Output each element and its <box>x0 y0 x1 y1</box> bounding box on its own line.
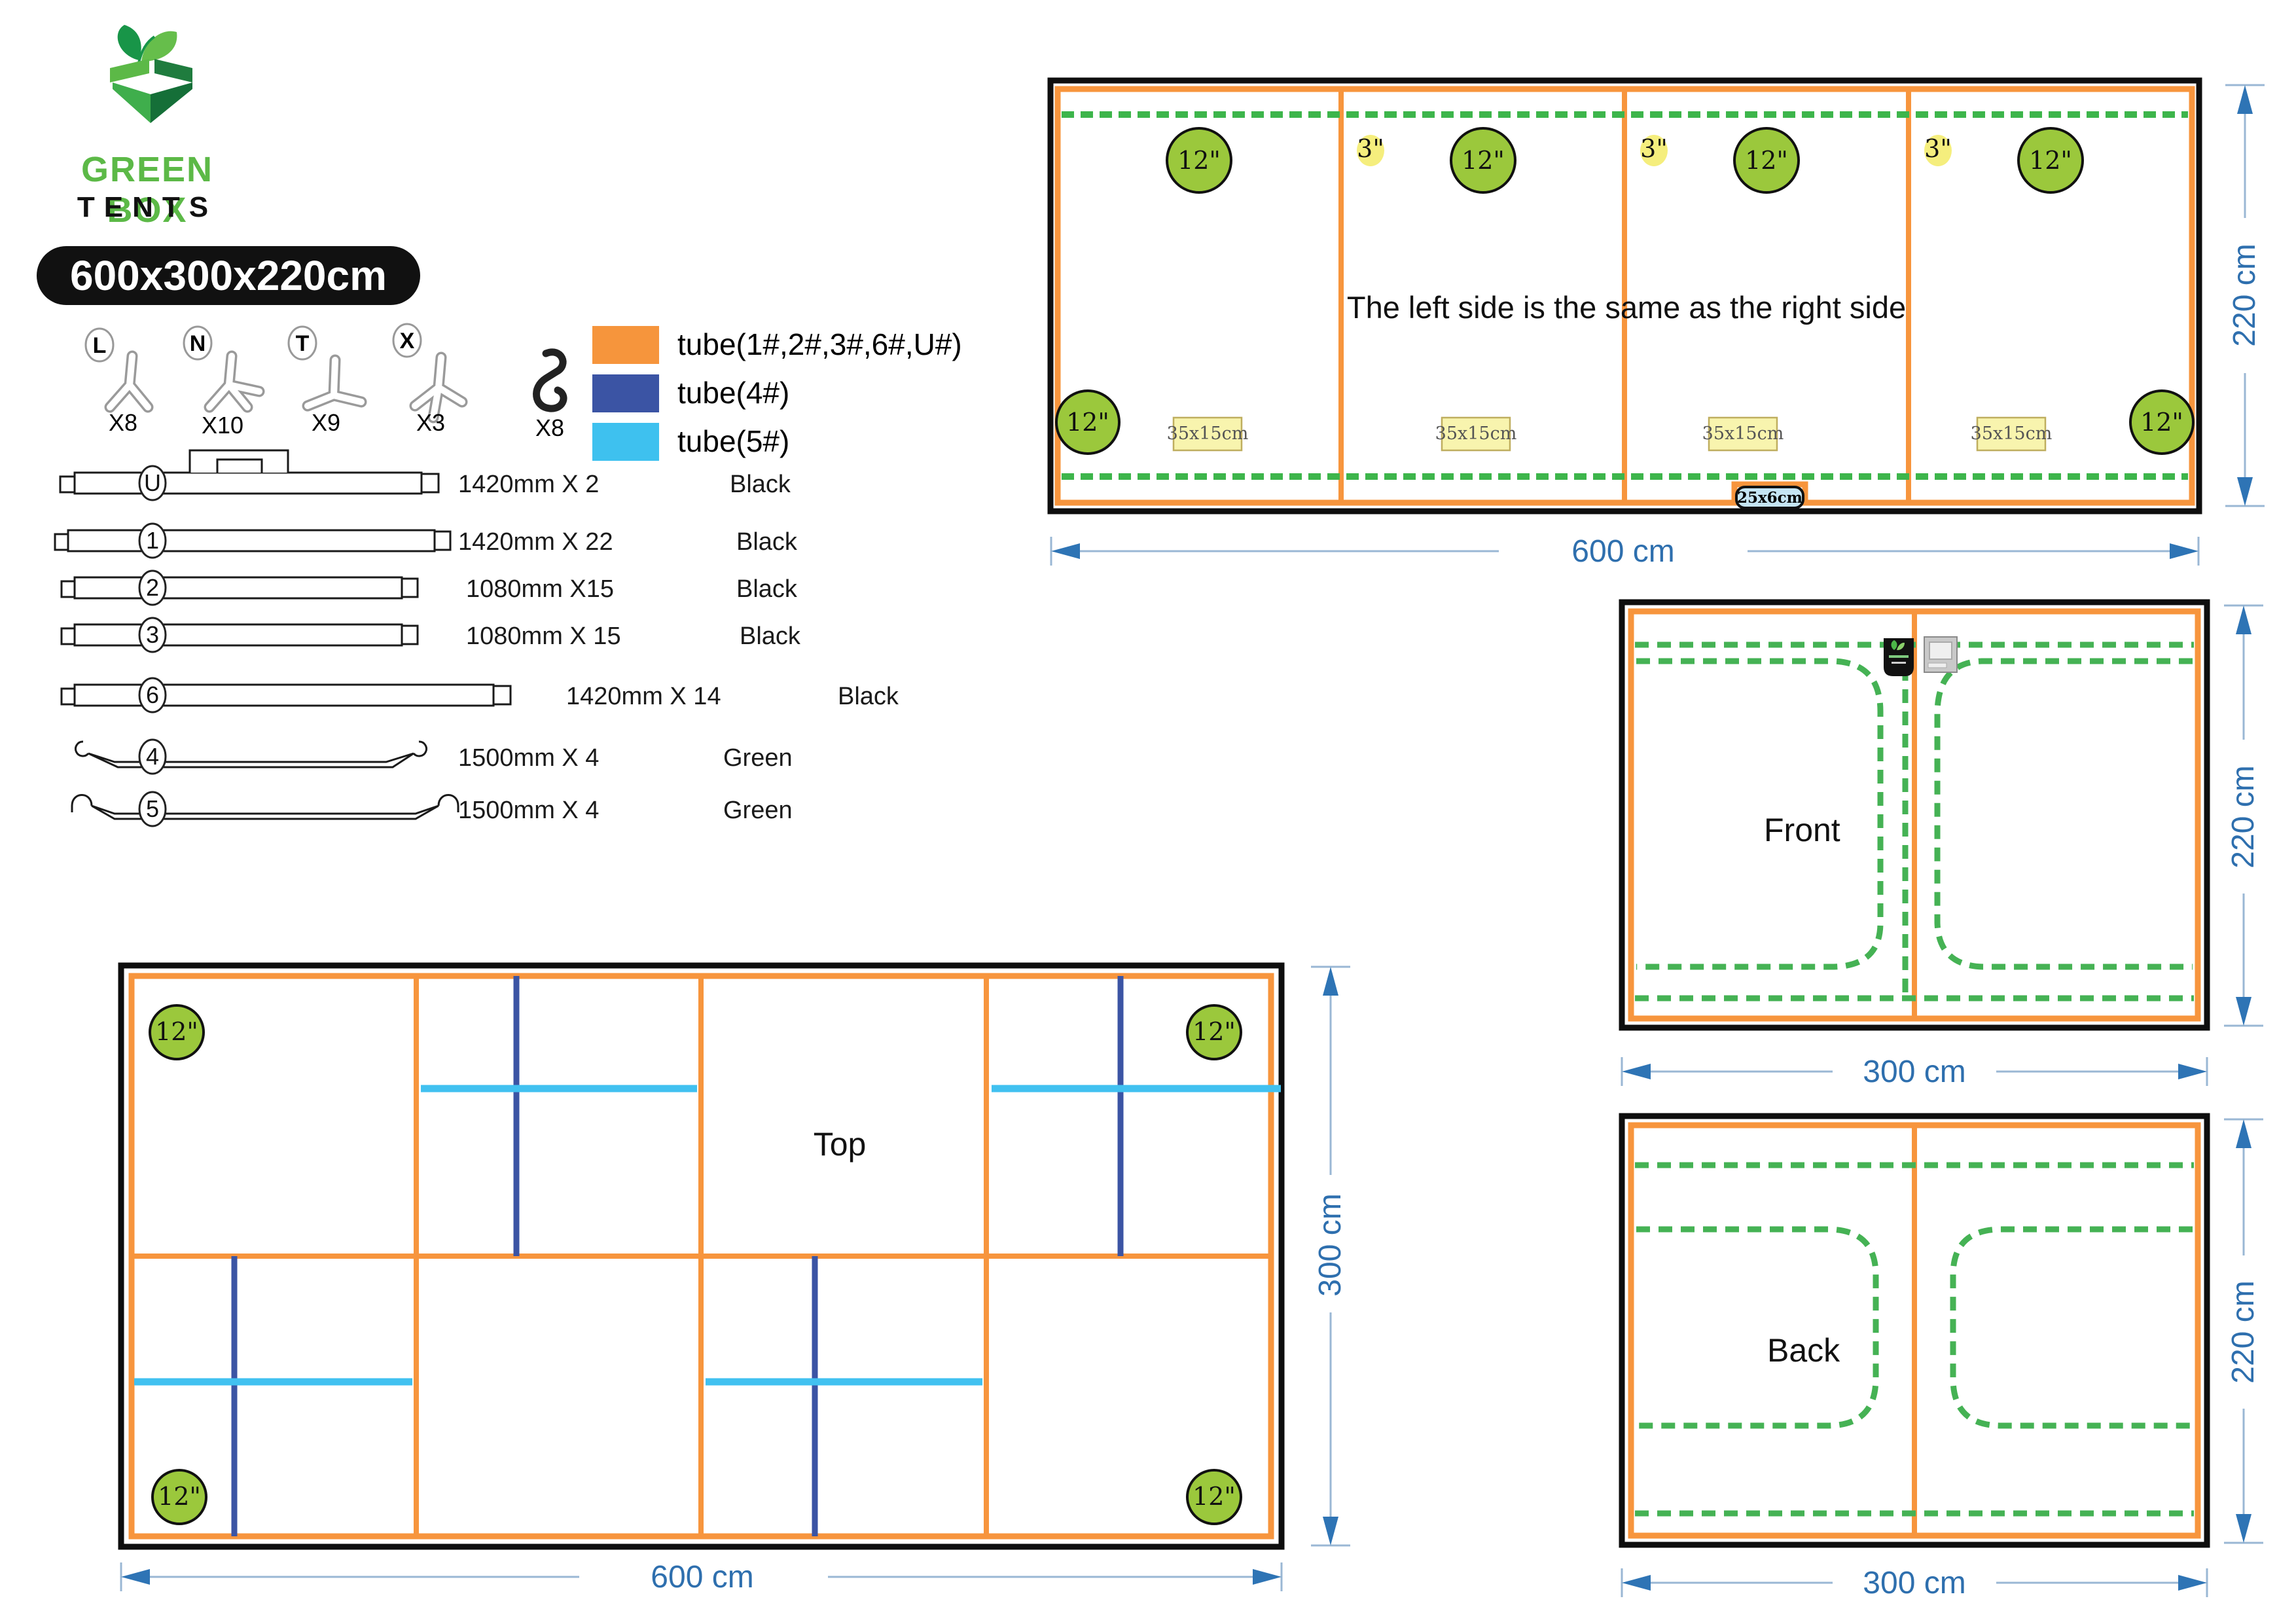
logo-box-icon <box>110 59 192 123</box>
connector-count: X9 <box>312 409 340 436</box>
connector-letter: L <box>93 333 107 358</box>
pole-id: 4 <box>146 743 159 770</box>
connector-letter: T <box>296 331 310 356</box>
legend-label: tube(4#) <box>677 376 789 410</box>
pole-id: 6 <box>146 681 159 708</box>
front-instruction-card <box>1924 637 1957 672</box>
pole-row-6: 6 1420mm X 14 Black <box>62 678 899 712</box>
parts-list: L X8 N X10 T X9 <box>26 308 1008 851</box>
dimension-label: 300 cm <box>1863 1566 1965 1600</box>
legend-label: tube(5#) <box>677 424 789 458</box>
vent-3in: 3" <box>1357 134 1384 163</box>
vent-12in: 12" <box>1745 146 1788 175</box>
three-way-connector-icon <box>209 356 259 407</box>
vent-12in: 12" <box>1193 1482 1236 1511</box>
vent-12in: 12" <box>1177 146 1221 175</box>
front-label: Front <box>1764 812 1840 848</box>
connector-T: T X9 <box>289 327 361 436</box>
back-panel-diagram: Back 300 cm 220 cm <box>1617 1113 2296 1624</box>
pole-id: U <box>144 469 161 496</box>
pole-color: Black <box>730 471 791 498</box>
vent-12in: 12" <box>155 1017 198 1046</box>
vent-12in: 12" <box>2140 408 2183 437</box>
pole-id: 3 <box>146 621 159 648</box>
hook-icon <box>537 352 564 408</box>
connector-count: X3 <box>416 409 445 436</box>
pole-id: 2 <box>146 574 159 601</box>
side-panel-diagram: 12" 12" 12" 12" 3" 3" 3" 12" 12" 35x15 <box>1047 77 2291 594</box>
pole-color: Green <box>723 797 793 824</box>
top-width-dimension: 600 cm <box>121 1560 1282 1595</box>
pole-spec: 1500mm X 4 <box>458 797 599 824</box>
legend-swatch-cyan <box>592 423 659 461</box>
top-panel-diagram: 12" 12" 12" 12" Top 600 cm 300 cm <box>115 959 1391 1620</box>
side-note: The left side is the same as the right s… <box>1347 290 1906 325</box>
tee-connector-icon <box>308 360 361 406</box>
connector-L: L X8 <box>86 329 148 436</box>
front-height-dimension: 220 cm <box>2224 605 2263 1026</box>
pole-color: Black <box>740 623 801 650</box>
pole-color: Black <box>838 683 899 710</box>
front-panel-diagram: Front 300 cm 220 cm <box>1617 599 2296 1123</box>
connector-letter: N <box>190 331 206 356</box>
vent-12in: 12" <box>1462 146 1505 175</box>
pole-color: Black <box>736 575 798 603</box>
connector-hook: X8 <box>535 352 564 441</box>
vent-12in: 12" <box>1066 408 1109 437</box>
pole-row-4: 4 1500mm X 4 Green <box>76 740 793 774</box>
pole-color: Green <box>723 744 793 772</box>
connector-letter: X <box>400 329 415 353</box>
pole-row-3: 3 1080mm X 15 Black <box>62 618 801 652</box>
pocket-label: 35x15cm <box>1167 424 1249 444</box>
legend-swatch-blue <box>592 374 659 412</box>
connector-count: X10 <box>202 412 243 439</box>
brand-logo <box>98 24 203 128</box>
dimension-label: 600 cm <box>1571 534 1674 569</box>
dimension-label: 220 cm <box>2226 765 2261 868</box>
corner-connector-icon <box>110 356 148 407</box>
outlet-label: 25x6cm <box>1737 489 1803 507</box>
legend-swatch-orange <box>592 326 659 364</box>
logo-leaves-icon <box>118 25 177 63</box>
instruction-sheet: GREEN BOX TENTS 600x300x220cm L X8 N X10 <box>0 0 2296 1624</box>
pole-row-1: 1 1420mm X 22 Black <box>55 524 798 558</box>
pole-spec: 1500mm X 4 <box>458 744 599 772</box>
pole-id: 1 <box>146 527 159 554</box>
connector-count: X8 <box>535 414 564 441</box>
connector-N: N X10 <box>184 327 259 439</box>
pole-id: 5 <box>146 795 159 822</box>
pocket-label: 35x15cm <box>1435 424 1517 444</box>
top-label: Top <box>814 1126 867 1163</box>
side-cord-outlet: 25x6cm <box>1734 484 1805 508</box>
front-width-dimension: 300 cm <box>1622 1055 2207 1089</box>
pocket-label: 35x15cm <box>1971 424 2053 444</box>
vent-3in: 3" <box>1640 134 1668 163</box>
front-brand-tag <box>1884 638 1914 676</box>
side-width-dimension: 600 cm <box>1051 534 2198 569</box>
vent-12in: 12" <box>158 1482 201 1511</box>
u-bump <box>190 450 288 473</box>
pole-spec: 1420mm X 22 <box>458 528 613 556</box>
vent-12in: 12" <box>2029 146 2072 175</box>
top-height-dimension: 300 cm <box>1311 967 1350 1545</box>
dimension-label: 300 cm <box>1313 1193 1348 1296</box>
vent-3in: 3" <box>1924 134 1952 163</box>
connector-count: X8 <box>109 409 137 436</box>
dimension-label: 300 cm <box>1863 1055 1965 1089</box>
back-label: Back <box>1767 1332 1840 1369</box>
side-height-dimension: 220 cm <box>2225 85 2265 506</box>
tube-color-legend: tube(1#,2#,3#,6#,U#) tube(4#) tube(5#) <box>592 326 962 461</box>
pole-row-5: 5 1500mm X 4 Green <box>72 792 793 826</box>
pole-spec: 1080mm X 15 <box>466 623 621 650</box>
vent-12in: 12" <box>1193 1017 1236 1046</box>
back-height-dimension: 220 cm <box>2224 1119 2263 1543</box>
back-width-dimension: 300 cm <box>1622 1566 2207 1600</box>
pole-spec: 1080mm X15 <box>466 575 614 603</box>
dimension-label: 600 cm <box>651 1560 753 1595</box>
pocket-label: 35x15cm <box>1702 424 1784 444</box>
pole-row-2: 2 1080mm X15 Black <box>62 571 798 605</box>
pole-spec: 1420mm X 14 <box>566 683 721 710</box>
legend-label: tube(1#,2#,3#,6#,U#) <box>677 327 962 361</box>
dimension-label: 220 cm <box>2226 1280 2261 1383</box>
brand-subname: TENTS <box>39 191 255 224</box>
pole-color: Black <box>736 528 798 556</box>
pole-spec: 1420mm X 2 <box>458 471 599 498</box>
size-badge: 600x300x220cm <box>37 246 420 305</box>
connector-X: X X3 <box>393 324 462 436</box>
dimension-label: 220 cm <box>2227 244 2262 346</box>
